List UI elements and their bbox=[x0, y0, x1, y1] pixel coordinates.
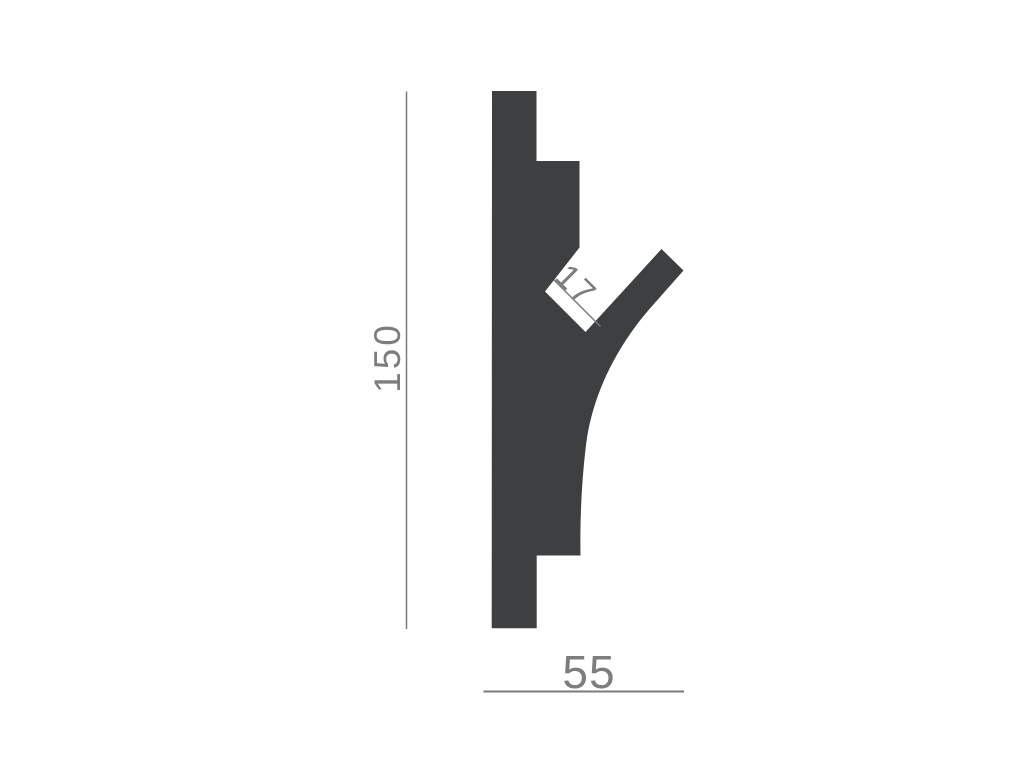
profile-cross-section-diagram: 150 55 17 bbox=[0, 0, 1024, 768]
profile-shape bbox=[492, 91, 684, 628]
height-dimension-label: 150 bbox=[367, 322, 408, 393]
width-dimension-label: 55 bbox=[562, 646, 615, 698]
diagram-canvas: 150 55 17 bbox=[0, 0, 1024, 768]
